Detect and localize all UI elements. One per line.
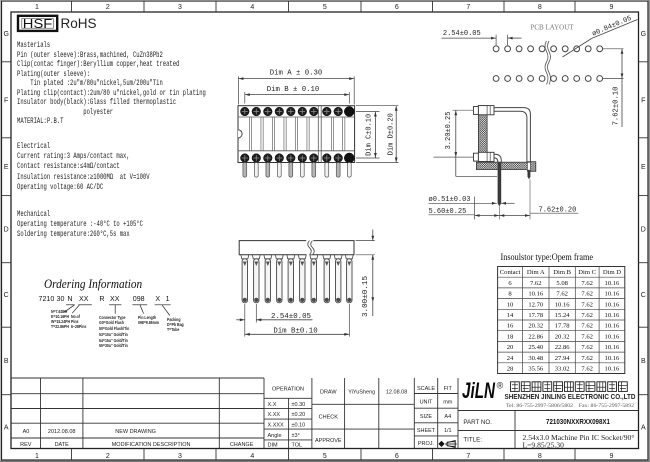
svg-text:20.32: 20.32 [528, 323, 543, 330]
svg-text:6: 6 [508, 280, 512, 287]
svg-text:HSF: HSF [23, 16, 53, 31]
svg-text:7.62: 7.62 [530, 280, 542, 287]
svg-text:TOL: TOL [292, 443, 303, 449]
svg-text:A4: A4 [444, 414, 451, 420]
svg-text:YiYuSheng: YiYuSheng [348, 390, 375, 396]
svg-text:A: A [641, 425, 646, 432]
svg-text:7.62: 7.62 [581, 312, 593, 319]
svg-text:20: 20 [507, 344, 514, 351]
svg-text:SIZE: SIZE [420, 414, 433, 420]
svg-text:7.62: 7.62 [581, 323, 593, 330]
svg-text:22.86: 22.86 [528, 333, 544, 340]
svg-text:7.62±0.10: 7.62±0.10 [613, 87, 621, 126]
svg-text:JiLN: JiLN [462, 378, 496, 403]
svg-text:NEW DRAWING: NEW DRAWING [115, 429, 156, 435]
svg-text:F: F [4, 97, 8, 104]
svg-text:5: 5 [323, 453, 327, 460]
svg-text:3: 3 [178, 4, 182, 11]
svg-text:C: C [641, 292, 646, 299]
svg-text:±0.20: ±0.20 [292, 412, 306, 418]
svg-text:±0.10: ±0.10 [292, 422, 306, 428]
svg-text:10.16: 10.16 [605, 333, 621, 340]
svg-text:A0: A0 [23, 429, 30, 435]
svg-text:SHEET: SHEET [417, 428, 436, 434]
svg-text:10.16: 10.16 [605, 323, 621, 330]
svg-text:L=9.85/25.30: L=9.85/25.30 [523, 440, 565, 449]
svg-text:35.56: 35.56 [528, 365, 544, 372]
svg-text:X.XXX: X.XXX [268, 422, 285, 428]
svg-text:10.16: 10.16 [605, 344, 621, 351]
svg-text:10.16: 10.16 [605, 365, 621, 372]
svg-text:F: F [641, 97, 645, 104]
svg-text:22.86: 22.86 [555, 344, 571, 351]
svg-text:7.62: 7.62 [581, 344, 593, 351]
svg-text:Dim C: Dim C [578, 269, 596, 276]
svg-text:1: 1 [35, 453, 39, 460]
svg-text:6: 6 [395, 453, 399, 460]
svg-text:Dim B: Dim B [553, 269, 571, 276]
svg-text:B: B [4, 358, 9, 365]
svg-text:10.16: 10.16 [605, 312, 621, 319]
svg-text:4: 4 [250, 453, 254, 460]
svg-text:PROJ.: PROJ. [418, 441, 435, 447]
svg-text:Dim D: Dim D [603, 269, 621, 276]
svg-text:3.00±0.15: 3.00±0.15 [362, 276, 370, 317]
svg-text:TITLE:: TITLE: [463, 436, 482, 443]
svg-text:10.16: 10.16 [555, 301, 571, 308]
svg-text:5: 5 [323, 4, 327, 11]
svg-text:7.62: 7.62 [581, 365, 593, 372]
svg-text:2: 2 [106, 4, 110, 11]
svg-text:mm: mm [443, 400, 453, 406]
svg-text:12.70: 12.70 [528, 301, 544, 308]
svg-text:SHENZHEN JINLING ELECTRONIC CO: SHENZHEN JINLING ELECTRONIC CO.,LTD [505, 394, 636, 401]
svg-text:5.08: 5.08 [556, 280, 568, 287]
svg-text:E: E [641, 164, 646, 171]
svg-text:RoHS: RoHS [61, 16, 97, 31]
svg-text:UNIT: UNIT [420, 400, 433, 406]
svg-text:2: 2 [106, 453, 110, 460]
svg-text:X.XX: X.XX [268, 412, 281, 418]
svg-text:7: 7 [466, 4, 470, 11]
svg-text:Dim B ± 0.10: Dim B ± 0.10 [267, 86, 320, 94]
svg-text:±3°: ±3° [292, 433, 300, 439]
svg-text:Insoulstor type:Opem frame: Insoulstor type:Opem frame [501, 252, 594, 263]
svg-text:Dim A ± 0.30: Dim A ± 0.30 [270, 70, 323, 78]
svg-text:Tel: 86-755-2997-5806/5802: Tel: 86-755-2997-5806/5802 Fax: 86-755-2… [506, 404, 635, 409]
svg-text:9: 9 [610, 4, 614, 11]
svg-text:REV: REV [20, 442, 32, 448]
svg-text:10.16: 10.16 [605, 291, 621, 298]
svg-text:8: 8 [508, 291, 512, 298]
svg-text:28: 28 [507, 365, 514, 372]
svg-text:30.48: 30.48 [528, 355, 544, 362]
svg-text:B: B [641, 358, 646, 365]
svg-text:1/1: 1/1 [444, 428, 452, 434]
svg-text:3: 3 [178, 453, 182, 460]
svg-text:G: G [641, 31, 646, 38]
svg-text:CHANGE: CHANGE [230, 442, 254, 448]
svg-text:E: E [4, 164, 9, 171]
svg-text:Angle: Angle [268, 433, 282, 439]
svg-text:3.20±0.25: 3.20±0.25 [445, 112, 453, 150]
svg-text:DRAW: DRAW [320, 390, 337, 396]
svg-text:FIT: FIT [444, 386, 453, 392]
svg-text:16: 16 [507, 323, 514, 330]
svg-text:12.08.08: 12.08.08 [386, 390, 407, 396]
svg-text:®: ® [497, 381, 504, 391]
svg-text:2.54±0.05: 2.54±0.05 [271, 313, 311, 321]
svg-text:7: 7 [466, 453, 470, 460]
svg-text:15.24: 15.24 [555, 312, 571, 319]
svg-text:Dim A: Dim A [527, 269, 545, 276]
svg-text:2.54±0.05: 2.54±0.05 [443, 30, 481, 38]
svg-text:Contact: Contact [500, 269, 521, 276]
svg-text:OPERATION: OPERATION [272, 387, 304, 393]
svg-text:2012.08.08: 2012.08.08 [48, 429, 76, 435]
svg-text:6: 6 [395, 4, 399, 11]
svg-text:10.16: 10.16 [605, 280, 621, 287]
svg-text:Dim C±0.10: Dim C±0.10 [366, 114, 374, 156]
svg-text:33.02: 33.02 [555, 365, 570, 372]
svg-text:C: C [4, 292, 9, 299]
svg-text:10.16: 10.16 [605, 301, 621, 308]
svg-text:10.16: 10.16 [605, 355, 621, 362]
svg-text:7.62: 7.62 [581, 355, 593, 362]
svg-text:14: 14 [507, 312, 514, 319]
svg-text:27.94: 27.94 [555, 355, 571, 362]
svg-text:X.X: X.X [268, 402, 277, 408]
svg-text:PCB LAYOUT: PCB LAYOUT [530, 24, 574, 32]
svg-text:9: 9 [610, 453, 614, 460]
svg-text:DATE: DATE [55, 442, 70, 448]
svg-text:±0.30: ±0.30 [292, 402, 306, 408]
svg-text:10.16: 10.16 [528, 291, 544, 298]
svg-text:7.62: 7.62 [581, 333, 593, 340]
svg-text:721030NXXRXX098X1: 721030NXXRXX098X1 [546, 419, 610, 426]
svg-text:8: 8 [538, 453, 542, 460]
svg-text:7.62: 7.62 [581, 280, 593, 287]
svg-text:1: 1 [35, 4, 39, 11]
svg-text:7.62: 7.62 [581, 291, 593, 298]
svg-text:G: G [3, 31, 8, 38]
svg-text:MODIFICATION DESCRIPTION: MODIFICATION DESCRIPTION [112, 442, 191, 448]
svg-text:25.40: 25.40 [528, 344, 544, 351]
svg-text:D: D [4, 227, 9, 234]
svg-text:7.62±0.20: 7.62±0.20 [539, 207, 577, 215]
svg-text:ø0.84±0.05: ø0.84±0.05 [591, 15, 633, 39]
svg-text:20.32: 20.32 [555, 333, 570, 340]
svg-text:17.78: 17.78 [528, 312, 544, 319]
svg-text:Dim D±0.20: Dim D±0.20 [388, 113, 396, 155]
svg-text:PART NO.: PART NO. [463, 419, 492, 426]
svg-text:17.78: 17.78 [555, 323, 571, 330]
svg-text:10: 10 [507, 301, 514, 308]
svg-text:18: 18 [507, 333, 514, 340]
svg-text:CHECK: CHECK [319, 415, 339, 421]
svg-text:APPROVE: APPROVE [315, 438, 342, 444]
svg-text:7.62: 7.62 [556, 291, 568, 298]
svg-text:A: A [4, 425, 9, 432]
svg-text:24: 24 [507, 355, 514, 362]
svg-text:D: D [641, 227, 646, 234]
svg-text:4: 4 [250, 4, 254, 11]
svg-text:7.62: 7.62 [581, 301, 593, 308]
svg-text:SCALE: SCALE [417, 386, 435, 392]
svg-text:8: 8 [538, 4, 542, 11]
svg-text:Dim B±0.10: Dim B±0.10 [273, 327, 317, 335]
svg-text:DIM: DIM [268, 443, 279, 449]
